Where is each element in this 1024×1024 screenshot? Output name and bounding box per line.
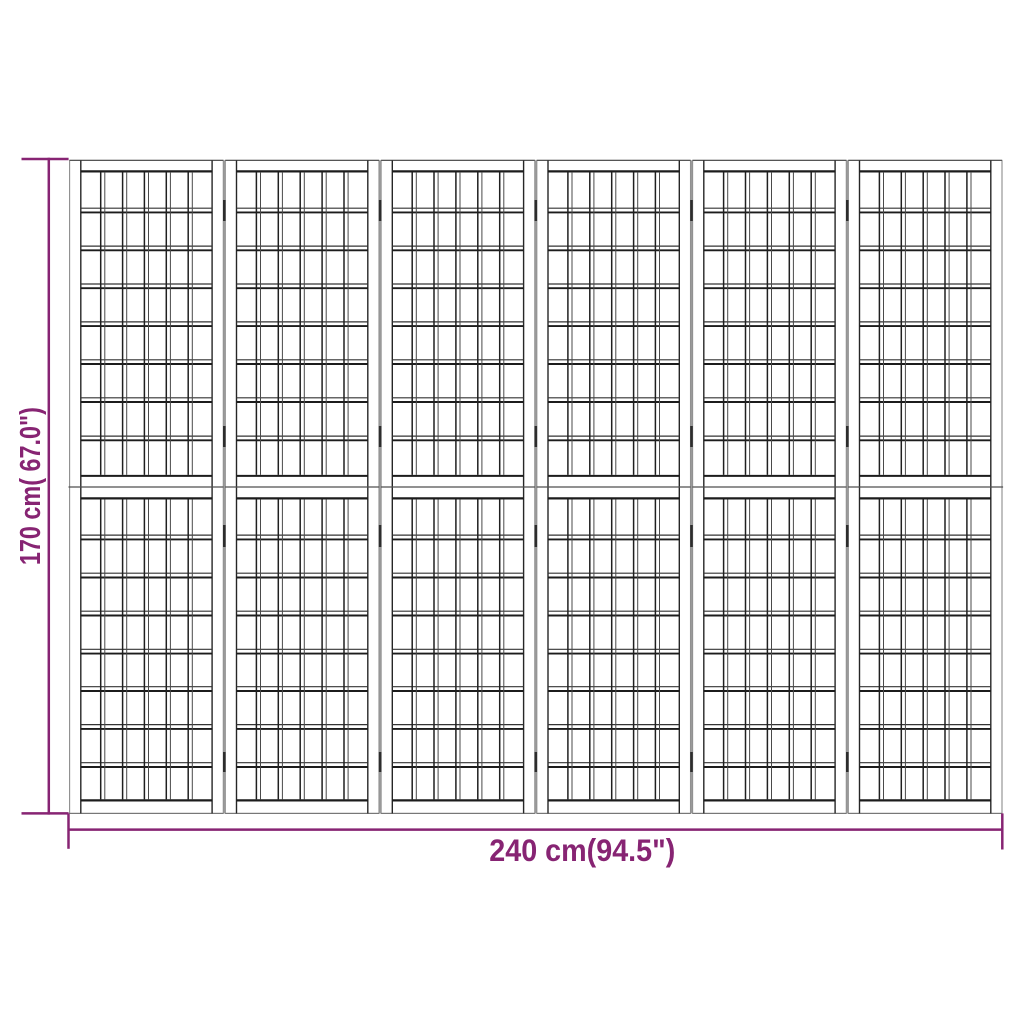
- svg-text:240 cm(94.5"): 240 cm(94.5"): [489, 832, 675, 868]
- svg-text:170 cm( 67.0"): 170 cm( 67.0"): [15, 407, 47, 565]
